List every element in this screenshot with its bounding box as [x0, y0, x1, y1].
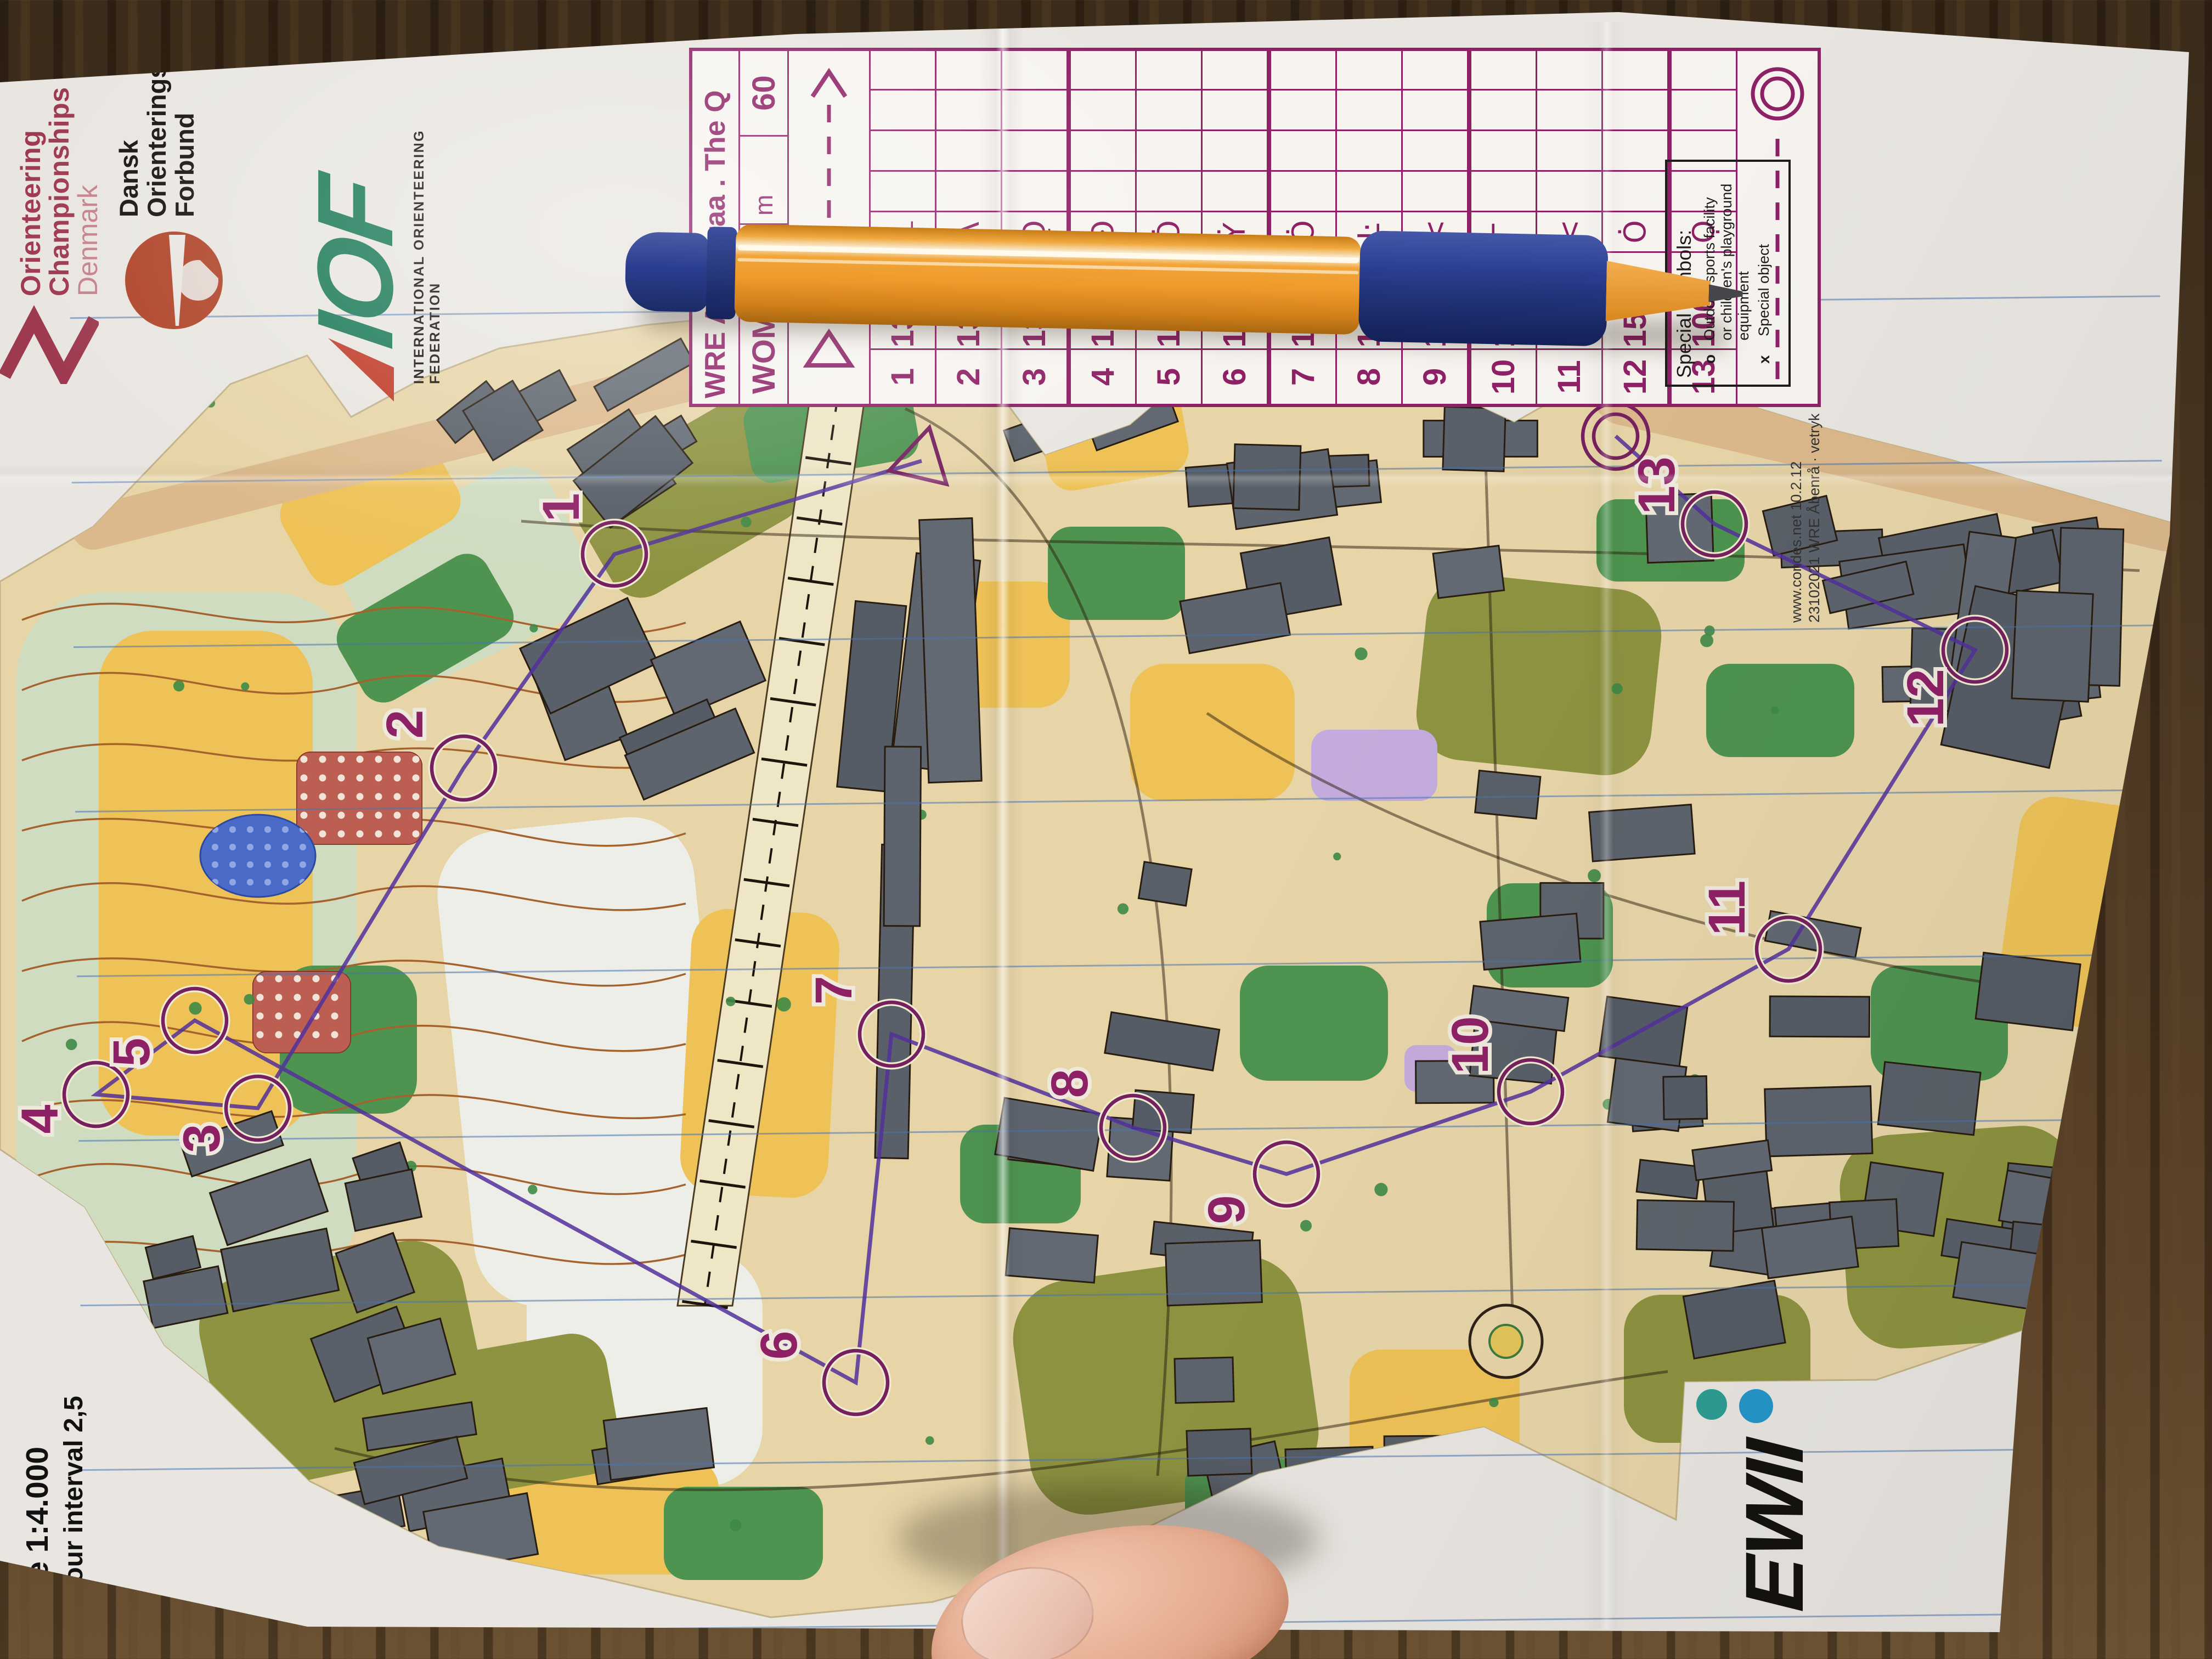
tree-dot — [1489, 1398, 1498, 1407]
tree-dot — [1333, 853, 1341, 860]
iof-caption: INTERNATIONAL ORIENTEERING FEDERATION — [411, 44, 443, 384]
control-number-11: 11 — [1698, 881, 1756, 935]
tree-dot — [926, 1436, 934, 1445]
control-number: 6 — [1203, 350, 1267, 404]
building — [919, 518, 982, 782]
terrain-patch-olv — [1412, 569, 1666, 780]
legend-x-mark: x — [1756, 347, 1773, 364]
building — [1765, 1086, 1872, 1156]
control-number-3: 3 — [173, 1124, 231, 1153]
building — [1475, 771, 1541, 819]
terrain-patch-lil — [1311, 730, 1437, 801]
scale-label: Scale 1:4.000 — [19, 1380, 55, 1643]
building — [1175, 1357, 1234, 1403]
contour-interval-label: Contour interval 2,5 m — [59, 1380, 119, 1643]
control-empty-cell — [871, 91, 935, 131]
tree-dot — [528, 1185, 537, 1194]
control-empty-cell — [1203, 172, 1267, 212]
control-empty-cell — [1537, 172, 1601, 212]
tree-dot — [741, 517, 751, 527]
control-empty-cell — [936, 131, 1001, 172]
control-empty-cell — [1002, 131, 1066, 172]
control-empty-cell — [936, 51, 1001, 91]
building — [1433, 546, 1504, 599]
tree-dot — [1118, 904, 1128, 915]
dof-line3: Forbund — [171, 55, 199, 217]
building — [1976, 952, 2080, 1030]
championships-zigzag-icon — [0, 285, 99, 384]
control-number-12: 12 — [1897, 669, 1955, 727]
building — [1285, 1447, 1374, 1497]
terrain-patch-grn — [1240, 966, 1388, 1081]
control-number-7: 7 — [805, 976, 863, 1005]
control-empty-cell — [1137, 131, 1201, 172]
imprint-line2: 23102021 WRE Åbenrå · vetryk — [1805, 304, 1824, 623]
photo-of-orienteering-map: { "logos": { "championships": {"line1":"… — [0, 0, 2212, 1659]
control-empty-cell — [1002, 51, 1066, 91]
control-number: 1 — [871, 350, 935, 404]
championships-line2: Championships — [45, 38, 74, 296]
iof-abbr: IOF — [307, 176, 404, 352]
tree-dot — [1355, 647, 1367, 660]
pen-ring — [706, 227, 737, 319]
control-number: 2 — [936, 350, 1001, 404]
pen-push-button — [625, 232, 710, 312]
control-empty-cell — [1672, 91, 1736, 131]
building — [884, 747, 921, 926]
map-scale-block: Scale 1:4.000 Contour interval 2,5 m — [19, 1380, 96, 1643]
building — [1443, 407, 1505, 471]
control-number: 7 — [1271, 350, 1335, 404]
building — [1663, 1076, 1707, 1120]
pen-barrel — [734, 224, 1361, 335]
terrain-patch-grn — [664, 1487, 823, 1580]
control-empty-cell — [1403, 51, 1467, 91]
card-climb: 60 — [740, 51, 787, 137]
control-empty-cell — [1537, 51, 1601, 91]
control-empty-cell — [1137, 91, 1201, 131]
ewii-wordmark: EWII — [1727, 1428, 1822, 1621]
tree-dot — [173, 680, 184, 691]
championships-line1: Orienteering — [16, 38, 45, 296]
control-number-4: 4 — [11, 1104, 69, 1133]
control-number: 4 — [1071, 350, 1135, 404]
imprint-line1: www.condes.net 10.2.12 — [1787, 304, 1805, 623]
control-empty-cell — [1337, 131, 1401, 172]
dof-text: Dansk Orienterings- Forbund — [110, 55, 199, 217]
control-empty-cell — [1337, 51, 1401, 91]
dof-runner-emblem-icon — [125, 232, 223, 329]
control-empty-cell — [1271, 131, 1335, 172]
control-empty-cell — [936, 91, 1001, 131]
control-empty-cell — [1203, 131, 1267, 172]
dof-line2: Orienterings- — [143, 55, 171, 217]
control-empty-cell — [1471, 51, 1536, 91]
ewii-dot-teal-icon — [1696, 1389, 1727, 1420]
tree-dot — [2055, 1325, 2066, 1337]
tree-dot — [259, 1476, 270, 1488]
card-distance: m — [740, 137, 787, 225]
control-empty-cell — [1271, 51, 1335, 91]
control-empty-cell — [1203, 91, 1267, 131]
control-empty-cell — [1137, 172, 1201, 212]
tree-dot — [1978, 400, 1991, 414]
control-empty-cell — [1071, 131, 1135, 172]
tree-dot — [1771, 706, 1779, 714]
tree-dot — [529, 624, 538, 633]
control-empty-cell — [1271, 91, 1335, 131]
tree-dot — [777, 997, 791, 1012]
control-number-5: 5 — [103, 1038, 161, 1067]
building — [2012, 591, 2093, 702]
out-of-bounds-area — [252, 971, 351, 1053]
ewii-dot-blue-icon — [1739, 1389, 1773, 1423]
control-empty-cell — [871, 51, 935, 91]
control-empty-cell — [1002, 91, 1066, 131]
control-empty-cell — [1403, 131, 1467, 172]
terrain-patch-ylw — [1130, 664, 1295, 801]
tree-dot — [244, 994, 255, 1005]
control-number: 10 — [1471, 350, 1536, 404]
control-empty-cell — [1471, 172, 1536, 212]
ballpoint-pen — [624, 213, 1748, 357]
control-empty-cell — [1271, 172, 1335, 212]
tree-dot — [1700, 634, 1713, 647]
control-empty-cell — [1537, 131, 1601, 172]
control-empty-cell — [1071, 51, 1135, 91]
tree-dot — [1300, 1220, 1312, 1232]
control-empty-cell — [936, 172, 1001, 212]
control-empty-cell — [1337, 91, 1401, 131]
building — [1384, 1436, 1476, 1488]
control-empty-cell — [1403, 172, 1467, 212]
tree-dot — [1878, 1504, 1888, 1513]
building — [1341, 1492, 1398, 1527]
terrain-patch-grn — [1706, 664, 1854, 757]
pen-tip — [1708, 283, 1743, 304]
control-empty-cell — [1603, 172, 1667, 212]
control-empty-cell — [1403, 91, 1467, 131]
dof-logo: Dansk Orienterings- Forbund — [110, 44, 247, 329]
dof-line1: Dansk — [115, 55, 143, 217]
terrain-patch-olv — [1006, 1248, 1327, 1522]
terrain-patch-grn — [2030, 1212, 2145, 1383]
building — [1878, 1062, 1980, 1135]
building — [603, 1408, 714, 1480]
building — [1589, 804, 1695, 861]
control-empty-cell — [1337, 172, 1401, 212]
control-empty-cell — [1603, 91, 1667, 131]
control-number: 11 — [1537, 350, 1601, 404]
control-number: 5 — [1137, 350, 1201, 404]
control-empty-cell — [1071, 172, 1135, 212]
building — [1762, 1216, 1858, 1278]
tree-dot — [1374, 1183, 1387, 1196]
building — [1599, 997, 1688, 1067]
control-number: 9 — [1403, 350, 1467, 404]
control-number-6: 6 — [750, 1331, 808, 1360]
control-empty-cell — [871, 131, 935, 172]
control-number-10: 10 — [1441, 1016, 1499, 1074]
control-empty-cell — [1071, 91, 1135, 131]
control-empty-cell — [1471, 91, 1536, 131]
control-empty-cell — [1603, 51, 1667, 91]
pen-grip — [1358, 230, 1609, 346]
building — [1233, 444, 1301, 510]
control-number-2: 2 — [376, 710, 434, 739]
tree-dot — [66, 1039, 77, 1051]
control-number-8: 8 — [1041, 1069, 1099, 1098]
building — [1770, 996, 1870, 1037]
control-number-9: 9 — [1198, 1195, 1256, 1224]
championships-logo: Orienteering Championships Denmark — [16, 38, 99, 296]
control-empty-cell — [1203, 51, 1267, 91]
print-imprint: www.condes.net 10.2.12 23102021 WRE Åben… — [1787, 304, 1829, 623]
out-of-bounds-area — [296, 752, 422, 845]
tree-dot — [198, 1420, 207, 1430]
tree-dot — [726, 997, 735, 1006]
control-empty-cell — [1471, 131, 1536, 172]
tree-dot — [1612, 683, 1623, 694]
control-empty-cell — [1002, 172, 1066, 212]
control-number-1: 1 — [532, 493, 590, 522]
tree-dot — [730, 1520, 742, 1532]
control-number-13: 13 — [1628, 456, 1686, 515]
iof-logo: IOF INTERNATIONAL ORIENTEERING FEDERATIO… — [307, 44, 455, 384]
building — [1637, 1200, 1734, 1251]
building — [1165, 1240, 1262, 1306]
building — [1006, 1228, 1098, 1283]
championships-line3: Denmark — [74, 38, 102, 296]
control-empty-cell — [1537, 91, 1601, 131]
control-number: 8 — [1337, 350, 1401, 404]
legend-item2-text: Special object — [1756, 244, 1773, 336]
control-number: 12 — [1603, 350, 1667, 404]
building — [1187, 1429, 1252, 1476]
pen-cone — [1606, 261, 1711, 323]
tree-dot — [189, 1002, 201, 1014]
tree-dot — [241, 682, 249, 691]
control-empty-cell — [1137, 51, 1201, 91]
control-empty-cell — [871, 172, 935, 212]
building — [1637, 1160, 1700, 1199]
control-empty-cell — [1603, 131, 1667, 172]
control-number: 3 — [1002, 350, 1066, 404]
tree-dot — [1588, 869, 1601, 882]
ewii-sponsor-logo: EWII — [1695, 1377, 1876, 1613]
control-empty-cell — [1672, 51, 1736, 91]
building — [1138, 862, 1192, 906]
